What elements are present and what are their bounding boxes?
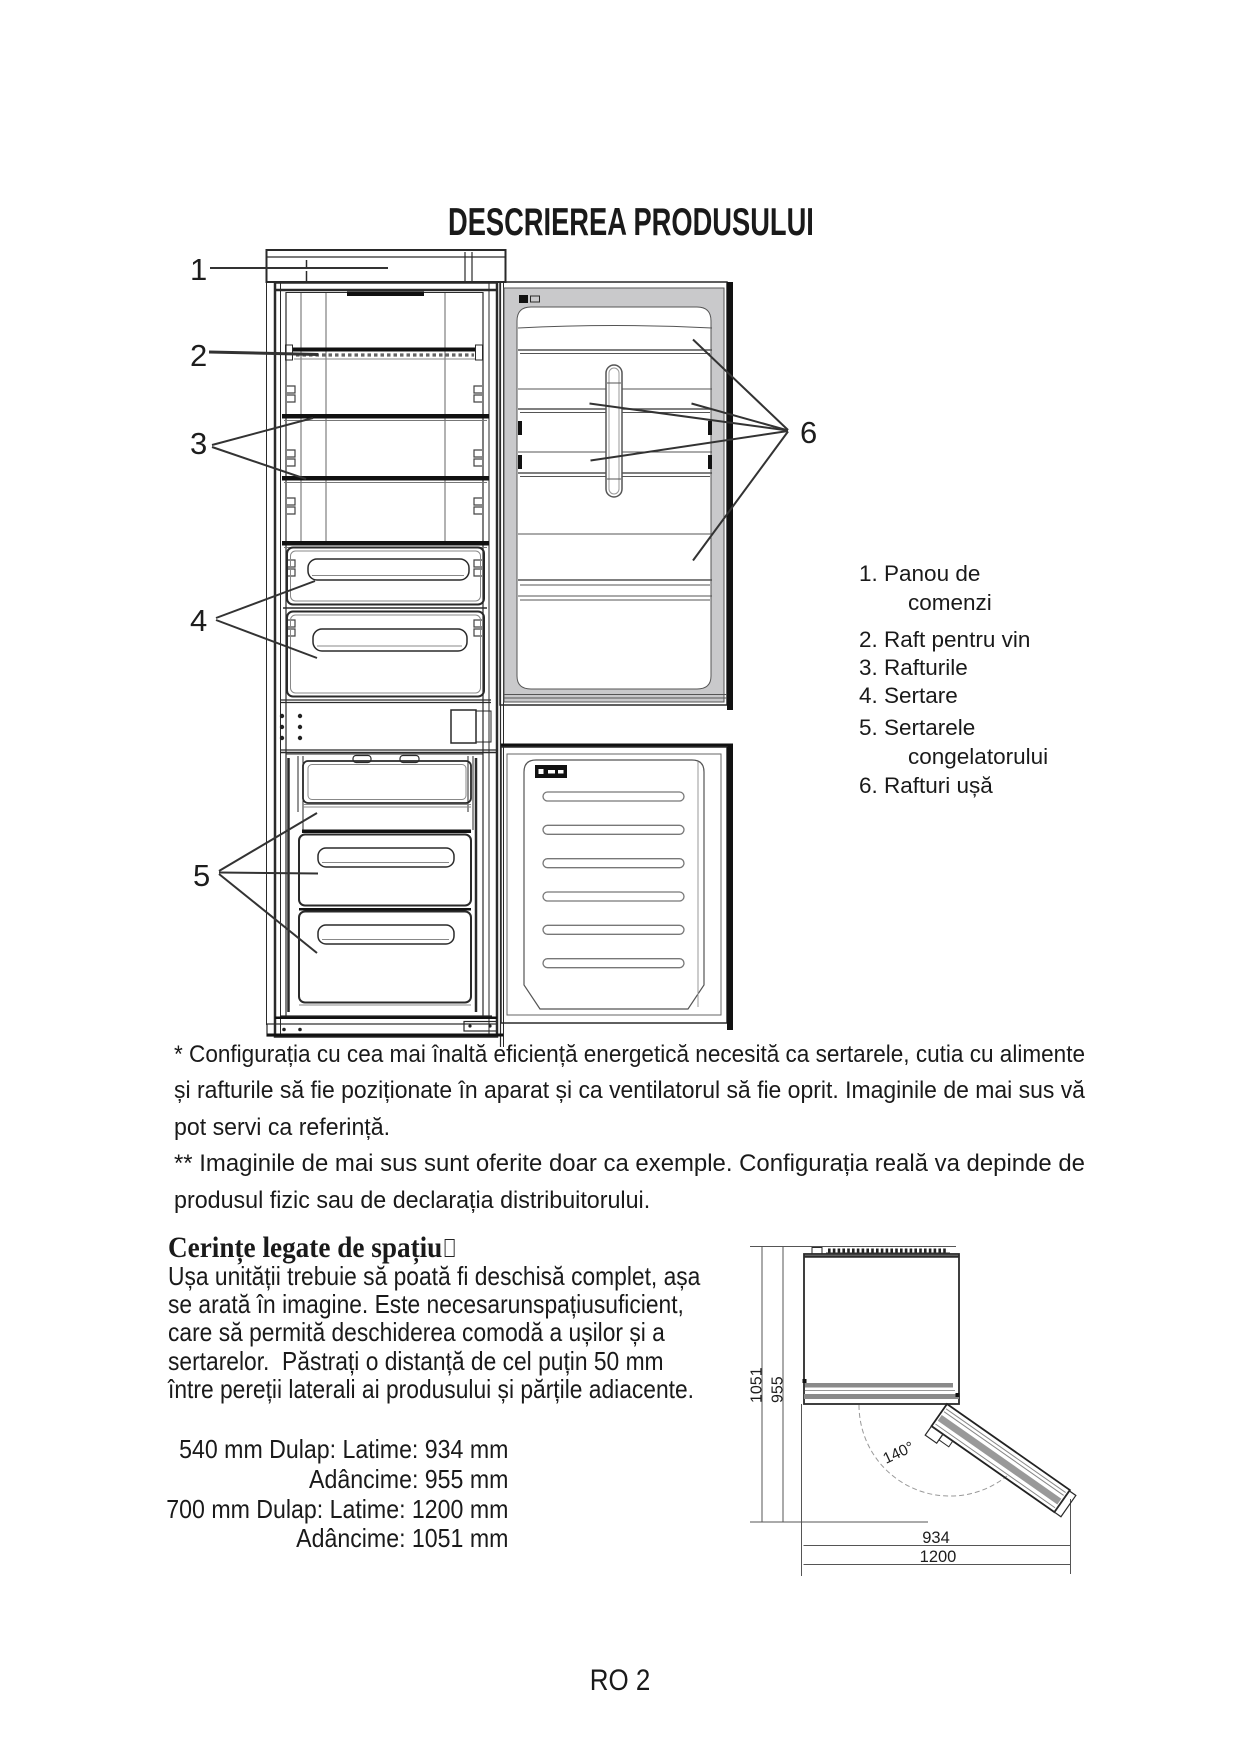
svg-text:3: 3: [190, 426, 207, 461]
svg-text:934: 934: [922, 1529, 950, 1547]
svg-text:1051: 1051: [749, 1367, 766, 1403]
svg-text:955: 955: [770, 1376, 787, 1403]
svg-text:1: 1: [190, 252, 207, 287]
svg-text:140°: 140°: [881, 1439, 917, 1468]
svg-text:2: 2: [190, 338, 207, 373]
svg-text:6: 6: [800, 415, 817, 450]
svg-text:1200: 1200: [920, 1548, 957, 1566]
svg-text:5: 5: [193, 858, 210, 893]
svg-text:4: 4: [190, 603, 207, 638]
